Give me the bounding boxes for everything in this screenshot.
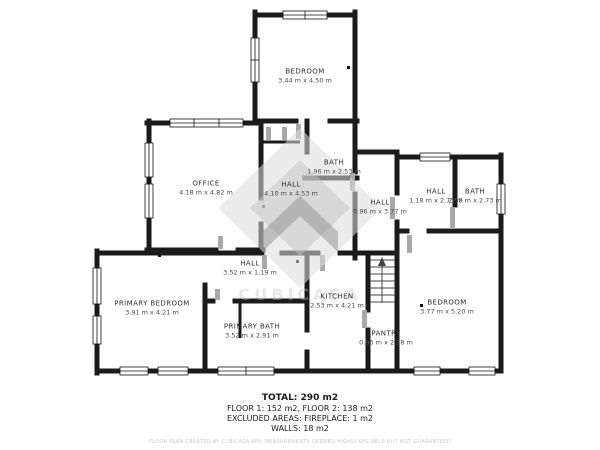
room-name: PRIMARY BEDROOM: [114, 300, 189, 308]
room-dims: 4.10 m x 4.53 m: [264, 190, 318, 198]
room-dims: 3.77 m x 5.20 m: [420, 308, 474, 316]
room-name: HALL: [223, 260, 277, 268]
room-name: HALL: [264, 181, 318, 189]
room-dims: 2.58 m x 2.73 m: [448, 197, 502, 205]
room-label-hall-center: HALL 4.10 m x 4.53 m: [264, 181, 318, 198]
room-name: PANTRY: [359, 330, 413, 338]
room-label-pantry: PANTRY 0.96 m x 2.18 m: [359, 330, 413, 347]
room-name: KITCHEN: [310, 293, 364, 301]
area-summary: TOTAL: 290 m2 FLOOR 1: 152 m2, FLOOR 2: …: [0, 393, 600, 445]
total-area-text: TOTAL: 290 m2: [0, 393, 600, 403]
stairs-up-arrow: [378, 257, 386, 266]
room-name: OFFICE: [179, 180, 233, 188]
room-label-bedroom-upper: BEDROOM 3.44 m x 4.50 m: [278, 68, 332, 85]
room-label-primary-bath: PRIMARY BATH 3.52 m x 2.91 m: [224, 323, 280, 340]
room-dims: 3.44 m x 4.50 m: [278, 77, 332, 85]
room-label-bath-center: BATH 1.96 m x 2.53 m: [307, 159, 361, 176]
room-dims: 3.52 m x 2.91 m: [224, 332, 280, 340]
room-name: BATH: [448, 188, 502, 196]
walls-area-text: WALLS: 18 m2: [0, 424, 600, 433]
room-dims: 1.96 m x 2.53 m: [307, 168, 361, 176]
room-label-kitchen: KITCHEN 2.53 m x 4.21 m: [310, 293, 364, 310]
room-name: BEDROOM: [278, 68, 332, 76]
room-label-hall-corridor: HALL 0.96 m x 3.77 m: [353, 199, 407, 216]
floorplan-page: CUBICASA BEDROOM 3.44 m x 4.50 m OFFICE …: [0, 0, 600, 450]
floor-areas-text: FLOOR 1: 152 m2, FLOOR 2: 138 m2: [0, 404, 600, 413]
room-name: HALL: [353, 199, 407, 207]
room-label-bath-right: BATH 2.58 m x 2.73 m: [448, 188, 502, 205]
room-label-bedroom-lower: BEDROOM 3.77 m x 5.20 m: [420, 299, 474, 316]
room-label-office: OFFICE 4.18 m x 4.82 m: [179, 180, 233, 197]
disclaimer-text: FLOOR PLAN CREATED BY CUBICASA APP. MEAS…: [0, 439, 600, 445]
room-name: PRIMARY BATH: [224, 323, 280, 331]
room-dims: 4.18 m x 4.82 m: [179, 189, 233, 197]
room-label-primary-bedroom: PRIMARY BEDROOM 3.91 m x 4.21 m: [114, 300, 189, 317]
room-dims: 0.96 m x 2.18 m: [359, 339, 413, 347]
room-name: BEDROOM: [420, 299, 474, 307]
room-dims: 3.52 m x 1.19 m: [223, 269, 277, 277]
room-dims: 2.53 m x 4.21 m: [310, 302, 364, 310]
excluded-areas-text: EXCLUDED AREAS: FIREPLACE: 1 m2: [0, 414, 600, 423]
staircase: [370, 257, 395, 303]
room-name: BATH: [307, 159, 361, 167]
room-dims: 0.96 m x 3.77 m: [353, 208, 407, 216]
room-dims: 3.91 m x 4.21 m: [114, 309, 189, 317]
room-label-hall-lower: HALL 3.52 m x 1.19 m: [223, 260, 277, 277]
